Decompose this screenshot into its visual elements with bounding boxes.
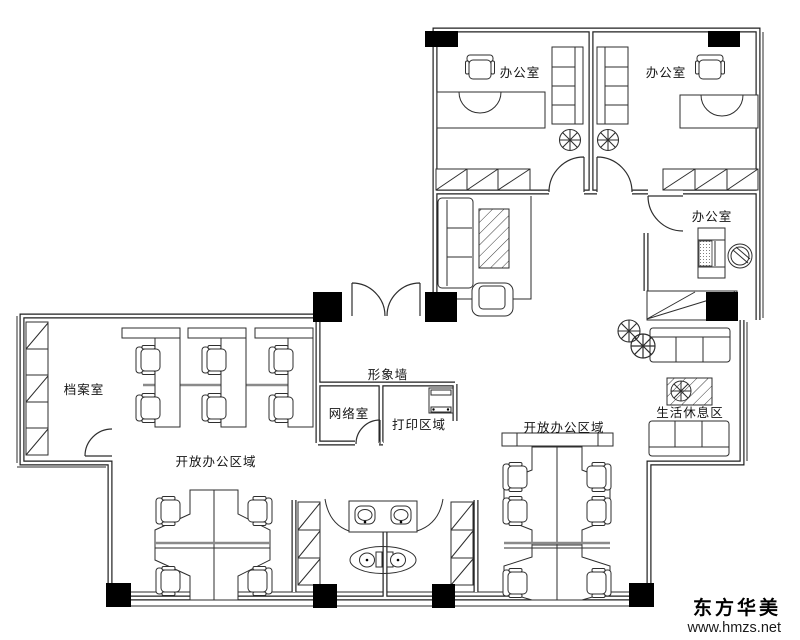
office-chair-icon — [587, 463, 611, 492]
plant-icon — [671, 381, 691, 401]
office-chair-icon — [156, 567, 180, 596]
label-open-office-bottom: 开放办公区域 — [523, 420, 604, 435]
watermark: 东方华美 www.hmzs.net — [687, 596, 781, 636]
label-rest-area: 生活休息区 — [656, 405, 724, 420]
workstation-cluster-4 — [155, 490, 272, 600]
desk — [680, 95, 758, 128]
door-office-top-left — [549, 157, 584, 192]
office-chair-icon — [696, 55, 725, 79]
floor-plan-drawing: 办公室 办公室 办公室 档案室 形象墙 网络室 打印区域 开放办公区域 开放办公… — [0, 0, 800, 640]
workstation-cluster-6 — [502, 433, 613, 600]
label-archive-room: 档案室 — [64, 382, 105, 397]
sofa-icon — [649, 421, 729, 456]
toilet-icon — [387, 552, 406, 567]
floor-plan-canvas: 办公室 办公室 办公室 档案室 形象墙 网络室 打印区域 开放办公区域 开放办公… — [0, 0, 800, 640]
entrance-double-door — [352, 283, 420, 316]
sofa-icon — [438, 198, 473, 288]
column — [313, 292, 342, 322]
label-office-top-left: 办公室 — [500, 65, 541, 80]
office-chair-icon — [269, 346, 293, 375]
office-chair-icon — [156, 497, 180, 526]
label-print-area: 打印区域 — [392, 418, 446, 432]
office-chair-icon — [503, 463, 527, 492]
label-open-office-left: 开放办公区域 — [175, 454, 256, 469]
column — [106, 583, 131, 607]
plant-icon — [598, 130, 619, 151]
door-office-top-right — [597, 157, 632, 192]
office-chair-icon — [503, 497, 527, 526]
label-feature-wall: 形象墙 — [368, 368, 409, 382]
column — [708, 31, 740, 47]
door-office-right — [648, 196, 683, 231]
sink-counter — [349, 501, 417, 532]
printer-icon — [429, 388, 453, 413]
label-network-room: 网络室 — [329, 406, 370, 421]
door-network-room — [356, 420, 380, 444]
armchair-icon — [472, 283, 513, 316]
label-office-right: 办公室 — [692, 209, 733, 224]
label-office-top-right: 办公室 — [646, 65, 687, 80]
column — [313, 584, 337, 608]
door-archive — [85, 429, 112, 456]
toilet-icon — [360, 552, 383, 567]
column — [425, 31, 458, 47]
plant-icon — [631, 334, 655, 358]
column — [706, 292, 738, 321]
office-chair-icon — [587, 569, 611, 598]
office-chair-icon — [248, 567, 272, 596]
office-chair-icon — [587, 497, 611, 526]
rest-area-furniture — [618, 320, 730, 456]
plant-icon — [618, 320, 640, 342]
sofa-icon — [650, 328, 730, 362]
watermark-brand: 东方华美 — [693, 596, 781, 619]
column — [432, 584, 455, 608]
column — [425, 292, 457, 322]
office-chair-icon — [136, 394, 160, 423]
archive-shelf — [26, 322, 48, 455]
office-chair-icon — [202, 346, 226, 375]
office-chair-icon — [503, 569, 527, 598]
office-chair-icon — [466, 55, 495, 79]
office-chair-icon — [248, 497, 272, 526]
plant-icon — [560, 130, 581, 151]
column — [629, 583, 654, 607]
coffee-table-icon — [479, 209, 509, 268]
office-chair-icon — [202, 394, 226, 423]
workstation-row — [122, 328, 313, 427]
watermark-website: www.hmzs.net — [687, 620, 781, 636]
office-chair-icon — [136, 346, 160, 375]
office-chair-icon — [269, 394, 293, 423]
